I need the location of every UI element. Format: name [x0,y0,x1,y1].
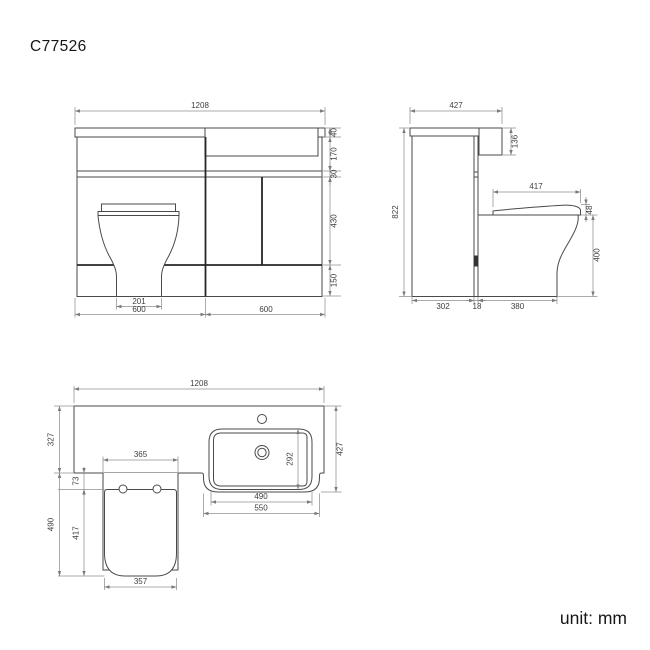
dimension-label: 600 [259,305,273,314]
dimension-label: 292 [286,452,295,466]
plan-seat-hinge-left [119,485,127,493]
dimension-arrowhead [82,490,85,495]
side-countertop [410,128,479,136]
side-toilet-pan-profile [478,215,578,297]
dimension-arrowhead [334,487,337,492]
dimension-arrowhead [591,292,594,297]
dim-side-upstand-height: 136 [503,128,520,155]
dimension-label: 18 [473,302,482,311]
dimension-label: 365 [134,450,148,459]
dimension-arrowhead [320,313,325,316]
dimension-label: 327 [47,432,56,446]
dimension-arrowhead [410,109,415,112]
dimension-label: 417 [72,526,81,540]
dim-plan-total-depth: 427 [321,406,345,492]
front-toilet-seat [98,212,179,216]
dim-side-total-depth: 427 [410,101,502,124]
dimension-label: 417 [529,182,543,191]
dimension-arrowhead [402,128,405,133]
dimension-arrowhead [509,150,512,155]
dimension-arrowhead [211,500,216,503]
dimension-arrowhead [584,200,587,205]
dimension-label: 490 [47,517,56,531]
dimension-arrowhead [75,313,80,316]
dim-side-seat-depth: 417 [493,182,581,207]
front-basin-recess [205,128,318,156]
plan-view [74,406,324,576]
dim-plan-seat-length: 417 [58,490,105,577]
dimension-arrowhead [584,215,587,220]
dimension-arrowhead [58,473,61,478]
dimension-arrowhead [328,291,331,296]
dimension-label: 302 [436,302,450,311]
dimension-arrowhead [552,299,557,302]
dimension-label: 380 [511,302,525,311]
dimension-label: 170 [330,147,339,161]
side-toilet-seat-profile [493,205,581,215]
side-door-handle [474,256,478,267]
dimension-arrowhead [412,299,417,302]
dimension-label: 150 [330,273,339,287]
dimension-label: 400 [593,248,602,262]
dim-front-plinth-height: 150 [323,265,341,296]
dimension-label: 822 [391,205,400,219]
dimension-arrowhead [328,265,331,270]
dimension-label: 490 [254,492,268,501]
dimension-arrowhead [576,190,581,193]
front-toilet-cistern-lid [102,204,176,212]
dimension-arrowhead [591,215,594,220]
dimension-label: 1208 [191,101,209,110]
dim-front-door-height: 430 [323,177,341,265]
dim-side-total-height: 822 [391,128,411,297]
dim-side-pan-depth: 380 [478,297,557,311]
dimension-label: 30 [330,169,339,178]
dimension-label: 357 [134,577,148,586]
technical-drawing-page: C77526 1208401 [0,0,650,650]
dimension-arrowhead [319,387,324,390]
side-view [410,128,581,297]
dimension-label: 550 [254,504,268,513]
dimension-arrowhead [58,571,61,576]
dimension-arrowhead [402,292,405,297]
dim-plan-pan-length: 490 [47,473,62,576]
dim-front-worktop-gap: 30 [323,163,341,185]
dimension-label: 427 [449,101,463,110]
dim-front-basin-recess-height: 170 [323,137,341,171]
dimension-label: 600 [132,305,146,314]
dim-plan-seat-width: 357 [105,577,177,590]
dim-front-countertop-thickness: 40 [323,128,341,137]
unit-label: unit: mm [560,608,627,628]
dimension-label: 48 [585,205,594,214]
dimension-label: 427 [336,442,345,456]
dimension-arrowhead [320,109,325,112]
dimension-arrowhead [117,305,122,308]
dim-front-total-width: 1208 [75,101,325,125]
dimension-arrowhead [206,313,211,316]
dimension-arrowhead [58,406,61,411]
side-cabinet-outline [412,136,478,297]
dimension-arrowhead [201,313,206,316]
dimension-arrowhead [307,500,312,503]
page-title: C77526 [30,38,87,55]
dim-plan-total-width: 1208 [74,379,324,403]
dimension-arrowhead [328,260,331,265]
dim-plan-counter-depth: 327 [47,406,74,473]
dimension-arrowhead [204,512,209,515]
dimension-label: 73 [72,476,81,485]
dim-front-right-section-width: 600 [206,298,326,318]
dimension-arrowhead [74,387,79,390]
dimension-arrowhead [315,512,320,515]
dimension-label: 136 [511,134,520,148]
dimension-arrowhead [497,109,502,112]
dimension-arrowhead [493,190,498,193]
plan-seat-hinge-right [153,485,161,493]
dimension-label: 1208 [190,379,208,388]
side-upstand-block [479,128,502,155]
plan-toilet-seat-outline [105,490,177,577]
dimension-arrowhead [58,468,61,473]
front-view [75,128,325,297]
dimension-label: 430 [330,214,339,228]
dimension-arrowhead [509,128,512,133]
dimension-arrowhead [172,585,177,588]
dimension-arrowhead [82,571,85,576]
dim-side-cabinet-depth: 302 [412,297,474,311]
dimension-arrowhead [105,585,110,588]
drawing-canvas: C77526 1208401 [0,0,650,650]
dimension-arrowhead [157,305,162,308]
dimension-arrowhead [75,109,80,112]
dimension-label: 40 [330,128,339,137]
dimension-arrowhead [334,406,337,411]
